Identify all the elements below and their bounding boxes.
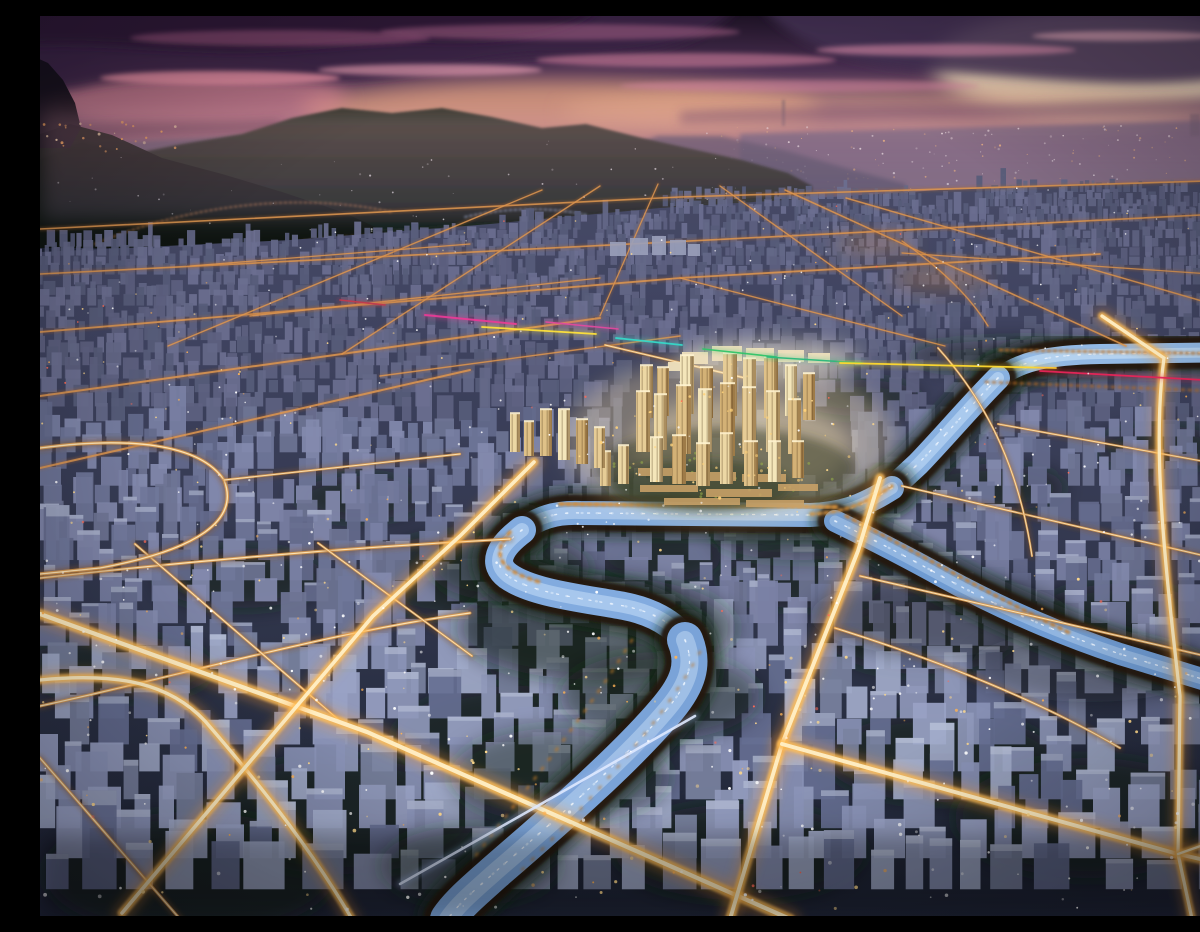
- aerial-city-rendering: [40, 16, 1200, 916]
- scene-canvas: [40, 16, 1200, 916]
- vignette: [40, 16, 1200, 916]
